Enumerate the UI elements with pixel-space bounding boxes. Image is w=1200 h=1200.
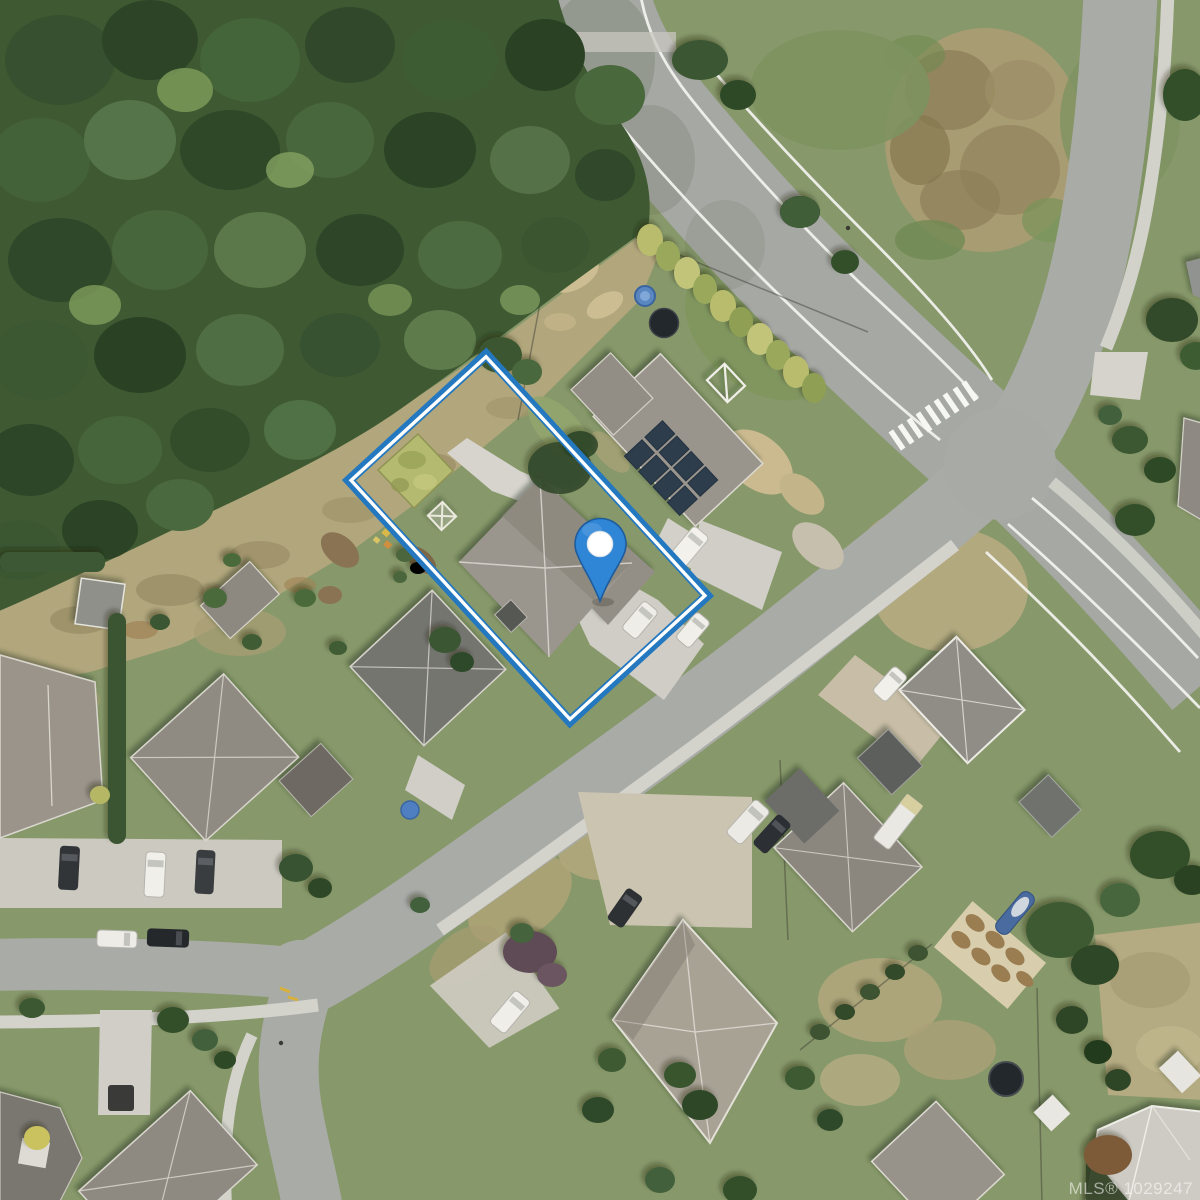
- aerial-photo: MLS® 1029247: [0, 0, 1200, 1200]
- trampoline: [650, 309, 679, 338]
- trampoline: [989, 1062, 1023, 1096]
- mls-watermark: MLS® 1029247: [1069, 1179, 1193, 1198]
- watermark-text: MLS® 1029247: [1069, 1179, 1193, 1198]
